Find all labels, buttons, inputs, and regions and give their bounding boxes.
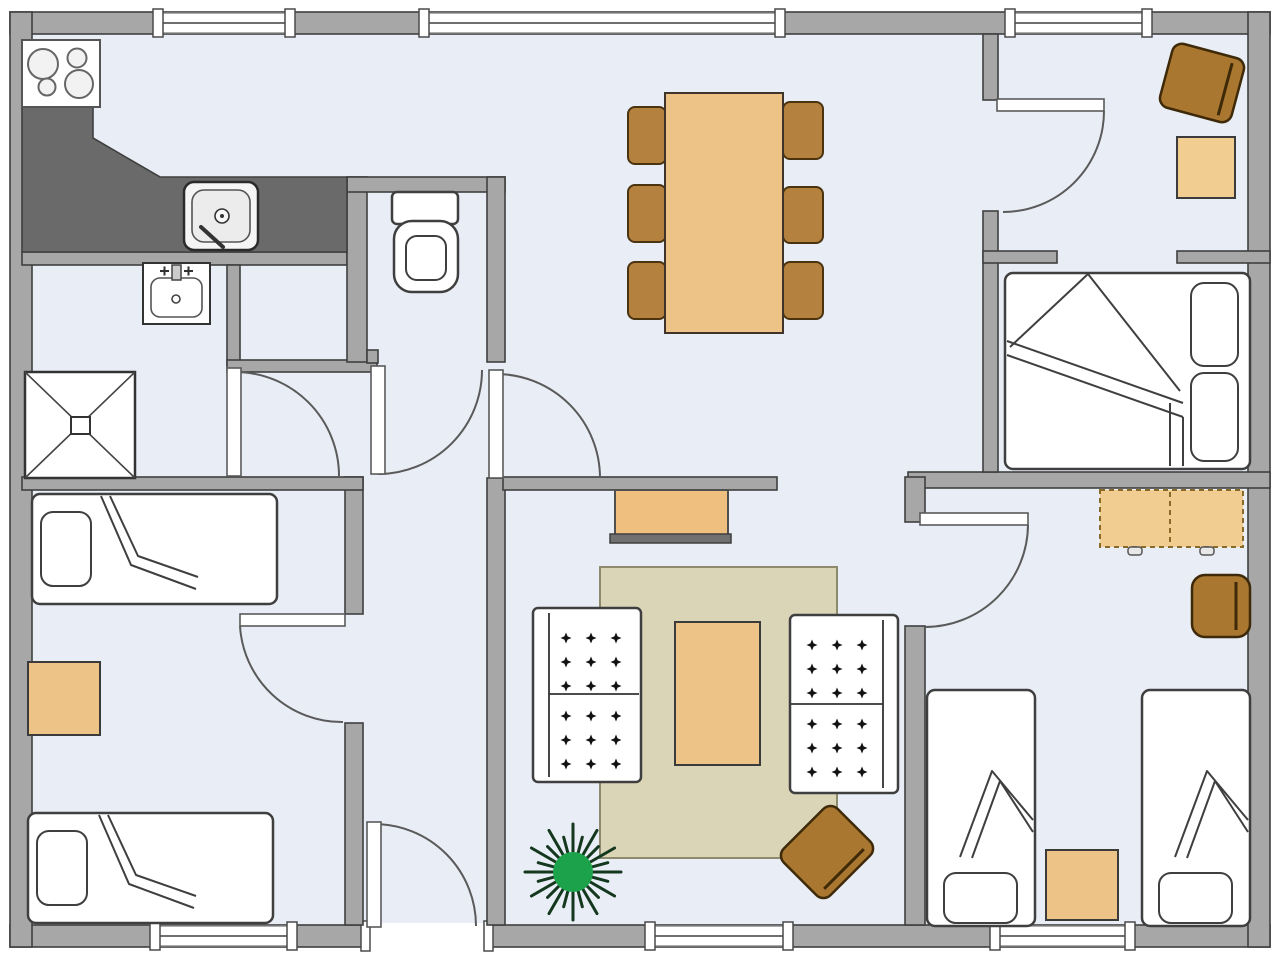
wall-room-tr-south-right	[1177, 251, 1270, 263]
wall-wc-right	[487, 177, 505, 362]
wall-room-tr-lower	[983, 211, 998, 472]
pillow	[1191, 373, 1238, 461]
wardrobe	[1100, 490, 1243, 547]
dining-area	[628, 93, 823, 333]
square-table	[1177, 137, 1235, 198]
dining-chair	[628, 185, 666, 242]
nightstand	[1046, 850, 1118, 920]
wall-right-mid	[908, 472, 1270, 488]
wall-bedroom-br-lower	[905, 626, 925, 925]
dining-chair	[628, 107, 666, 164]
wc-door-leaf	[371, 366, 385, 474]
pillow	[944, 873, 1017, 923]
sofa-right	[790, 615, 898, 793]
dining-chair	[783, 262, 823, 319]
wall-room-tr-upper	[983, 34, 998, 100]
dining-chair	[783, 187, 823, 243]
wall-wc-top	[347, 177, 505, 192]
sink-drain-dot	[220, 214, 224, 218]
dining-chair	[628, 262, 666, 319]
entrance-opening	[363, 923, 489, 959]
room-tr-door-leaf	[997, 99, 1104, 111]
burner-icon	[39, 79, 56, 96]
wall-room-tr-south-left	[983, 251, 1057, 263]
wall-living-north	[503, 477, 777, 490]
wall-hall-left-upper	[345, 477, 363, 614]
floor-plan-canvas	[0, 0, 1280, 959]
living-door-leaf	[489, 370, 503, 478]
bedroom-mid-right	[1005, 273, 1250, 469]
sideboard	[615, 490, 728, 536]
wardrobe-foot	[1200, 547, 1214, 555]
toilet-seat	[406, 236, 446, 280]
armchair-small	[1192, 575, 1250, 637]
wc	[392, 192, 458, 292]
wall-hall-left-lower	[345, 723, 363, 925]
toilet-tank	[392, 192, 458, 224]
wall-hall-right	[487, 478, 505, 925]
shower-drain-icon	[71, 417, 90, 434]
dining-chair	[783, 102, 823, 159]
wall-closet-left	[227, 265, 240, 365]
burner-icon	[65, 70, 93, 98]
burner-icon	[28, 49, 58, 79]
pillow	[1159, 873, 1232, 923]
basin-drain-icon	[172, 295, 180, 303]
entrance-door-leaf	[367, 822, 381, 927]
wall-wc-door-stub	[367, 350, 378, 363]
sofa-left	[533, 608, 641, 782]
dining-table	[665, 93, 783, 333]
plant-center	[553, 852, 593, 892]
bathroom-door-leaf	[227, 368, 241, 476]
side-table	[28, 662, 100, 735]
wall-wc-left	[347, 177, 367, 362]
pillow	[41, 512, 91, 586]
floor-plan	[0, 0, 1280, 959]
bedroom-left-door-leaf	[240, 614, 345, 626]
bedroom-br-door-leaf	[920, 513, 1028, 525]
wardrobe-foot	[1128, 547, 1142, 555]
sideboard-edge	[610, 534, 731, 543]
basin-faucet-icon	[172, 265, 181, 280]
pillow	[1191, 283, 1238, 366]
burner-icon	[68, 49, 87, 68]
pillow	[37, 831, 87, 905]
coffee-table	[675, 622, 760, 765]
